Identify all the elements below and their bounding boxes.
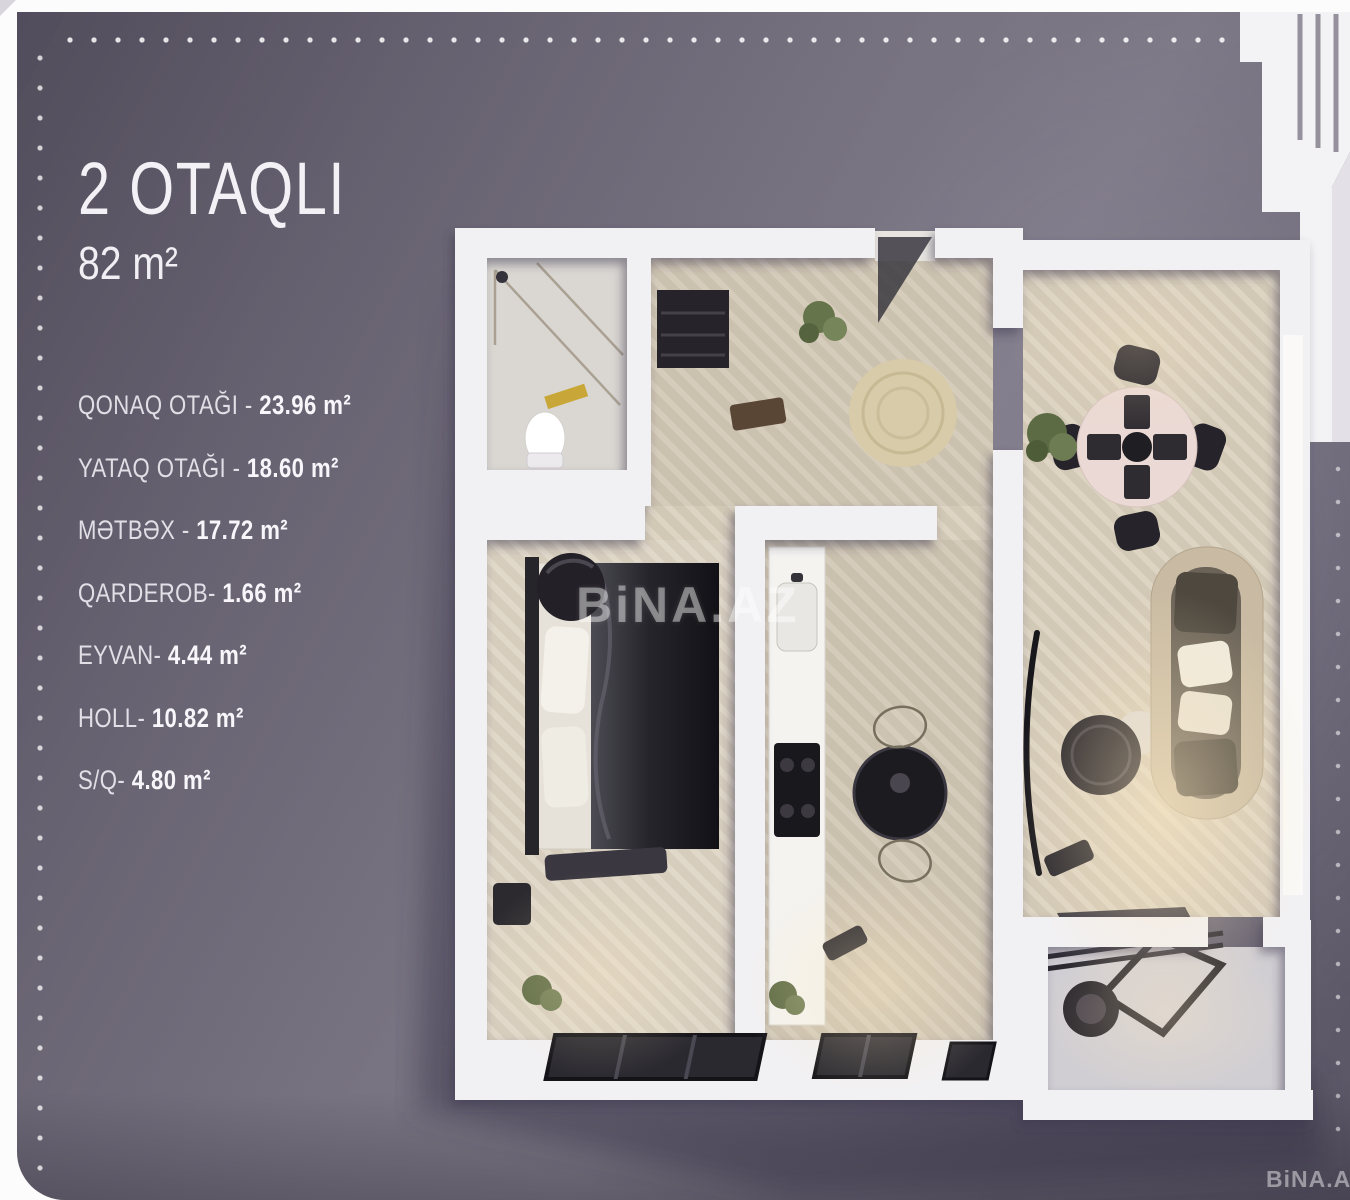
room-row-qarderob: QARDEROB- 1.66 m²	[78, 578, 422, 641]
room-separator: -	[117, 765, 131, 795]
page-title: 2 OTAQLI	[78, 146, 346, 231]
room-label: QONAQ OTAĞI	[78, 390, 238, 420]
room-value: 4.44 m²	[168, 640, 247, 670]
shower-drain	[496, 271, 508, 283]
room-row-metbex: MƏTBƏX - 17.72 m²	[78, 515, 422, 578]
floorplan-render	[395, 195, 1350, 1200]
room-separator: -	[238, 390, 259, 420]
toilet	[525, 412, 565, 468]
wall-balcony-left	[1023, 947, 1048, 1092]
room-row-yataq: YATAQ OTAĞI - 18.60 m²	[78, 453, 422, 516]
room-row-eyvan: EYVAN- 4.44 m²	[78, 640, 422, 703]
wall-bedroom-top	[455, 506, 645, 540]
room-label: QARDEROB	[78, 578, 208, 608]
room-row-qonaq: QONAQ OTAĞI - 23.96 m²	[78, 390, 422, 453]
table-plate	[890, 773, 910, 793]
room-label: EYVAN	[78, 640, 153, 670]
room-label: S/Q	[78, 765, 117, 795]
room-label: MƏTBƏX	[78, 515, 175, 545]
bedroom-door-gap	[645, 506, 735, 540]
wall-hall-living-upper	[993, 228, 1023, 328]
wall-bathroom-right	[627, 228, 651, 490]
round-rug	[849, 359, 957, 467]
wall-kitchen-top	[765, 506, 937, 540]
room-value: 10.82 m²	[152, 703, 244, 733]
kitchen-door-gap	[937, 506, 993, 540]
bed-pillow	[540, 626, 590, 715]
room-separator: -	[175, 515, 196, 545]
bed-pillow	[541, 726, 589, 808]
watermark-corner: BiNA.AZ	[1266, 1166, 1350, 1193]
room-separator: -	[226, 453, 247, 483]
room-value: 23.96 m²	[259, 390, 351, 420]
room-value: 18.60 m²	[247, 453, 339, 483]
listing-card-image: 2 OTAQLI 82 m² QONAQ OTAĞI - 23.96 m² YA…	[0, 0, 1350, 1200]
total-area: 82 m²	[78, 236, 178, 290]
room-row-sq: S/Q- 4.80 m²	[78, 765, 422, 828]
room-label: YATAQ OTAĞI	[78, 453, 226, 483]
cooktop	[774, 743, 820, 837]
room-separator: -	[153, 640, 167, 670]
room-value: 17.72 m²	[196, 515, 288, 545]
wall-top	[455, 228, 875, 258]
room-separator: -	[137, 703, 151, 733]
centerpiece	[1122, 432, 1152, 462]
room-separator: -	[208, 578, 222, 608]
wall-bathroom-bottom	[455, 470, 651, 506]
room-value: 4.80 m²	[132, 765, 211, 795]
room-row-holl: HOLL- 10.82 m²	[78, 703, 422, 766]
wall-top-core	[935, 228, 993, 258]
corner-fold-mark	[0, 0, 16, 16]
room-value: 1.66 m²	[222, 578, 301, 608]
bed-headboard	[525, 557, 539, 855]
room-label: HOLL	[78, 703, 137, 733]
watermark-center: BiNA.AZ	[576, 576, 800, 634]
